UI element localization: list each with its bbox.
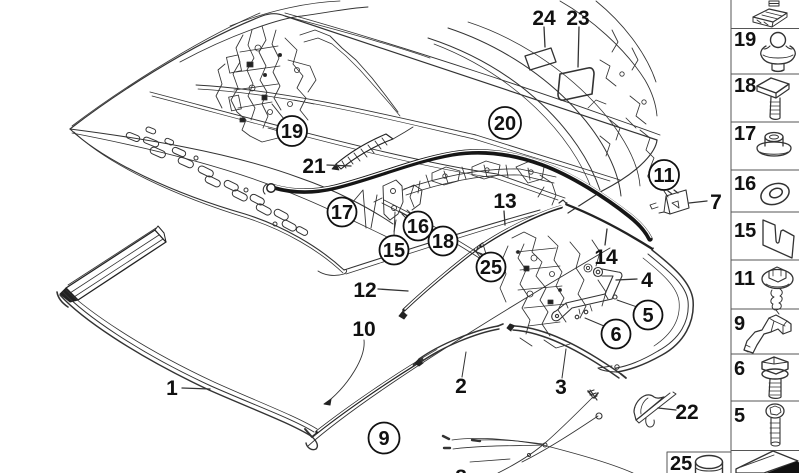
svg-text:17: 17: [331, 202, 353, 224]
svg-text:6: 6: [734, 358, 745, 380]
svg-text:2: 2: [455, 375, 467, 398]
svg-text:15: 15: [383, 240, 405, 262]
svg-text:16: 16: [407, 216, 429, 238]
svg-text:1: 1: [166, 377, 178, 400]
svg-text:21: 21: [302, 155, 326, 178]
svg-text:7: 7: [710, 191, 722, 214]
svg-text:23: 23: [566, 7, 589, 30]
svg-text:18: 18: [432, 231, 454, 253]
svg-text:22: 22: [675, 401, 698, 424]
svg-text:17: 17: [734, 123, 756, 145]
svg-text:6: 6: [610, 324, 621, 346]
svg-text:20: 20: [494, 113, 516, 135]
svg-text:19: 19: [734, 29, 756, 51]
svg-text:11: 11: [653, 165, 674, 187]
svg-text:11: 11: [734, 268, 755, 290]
svg-text:25: 25: [480, 257, 502, 279]
svg-text:16: 16: [734, 173, 756, 195]
svg-text:5: 5: [642, 305, 653, 327]
svg-text:14: 14: [594, 246, 618, 269]
svg-text:13: 13: [493, 190, 516, 213]
svg-text:5: 5: [734, 405, 745, 427]
svg-text:3: 3: [555, 376, 567, 399]
svg-text:4: 4: [641, 269, 653, 292]
svg-text:18: 18: [734, 75, 756, 97]
svg-text:10: 10: [352, 318, 375, 341]
svg-text:8: 8: [455, 466, 467, 473]
svg-text:19: 19: [281, 121, 303, 143]
svg-text:9: 9: [734, 313, 745, 335]
svg-text:12: 12: [353, 279, 376, 302]
svg-text:24: 24: [532, 7, 556, 30]
svg-text:15: 15: [734, 220, 756, 242]
svg-text:25: 25: [670, 453, 692, 473]
svg-text:9: 9: [378, 428, 389, 450]
